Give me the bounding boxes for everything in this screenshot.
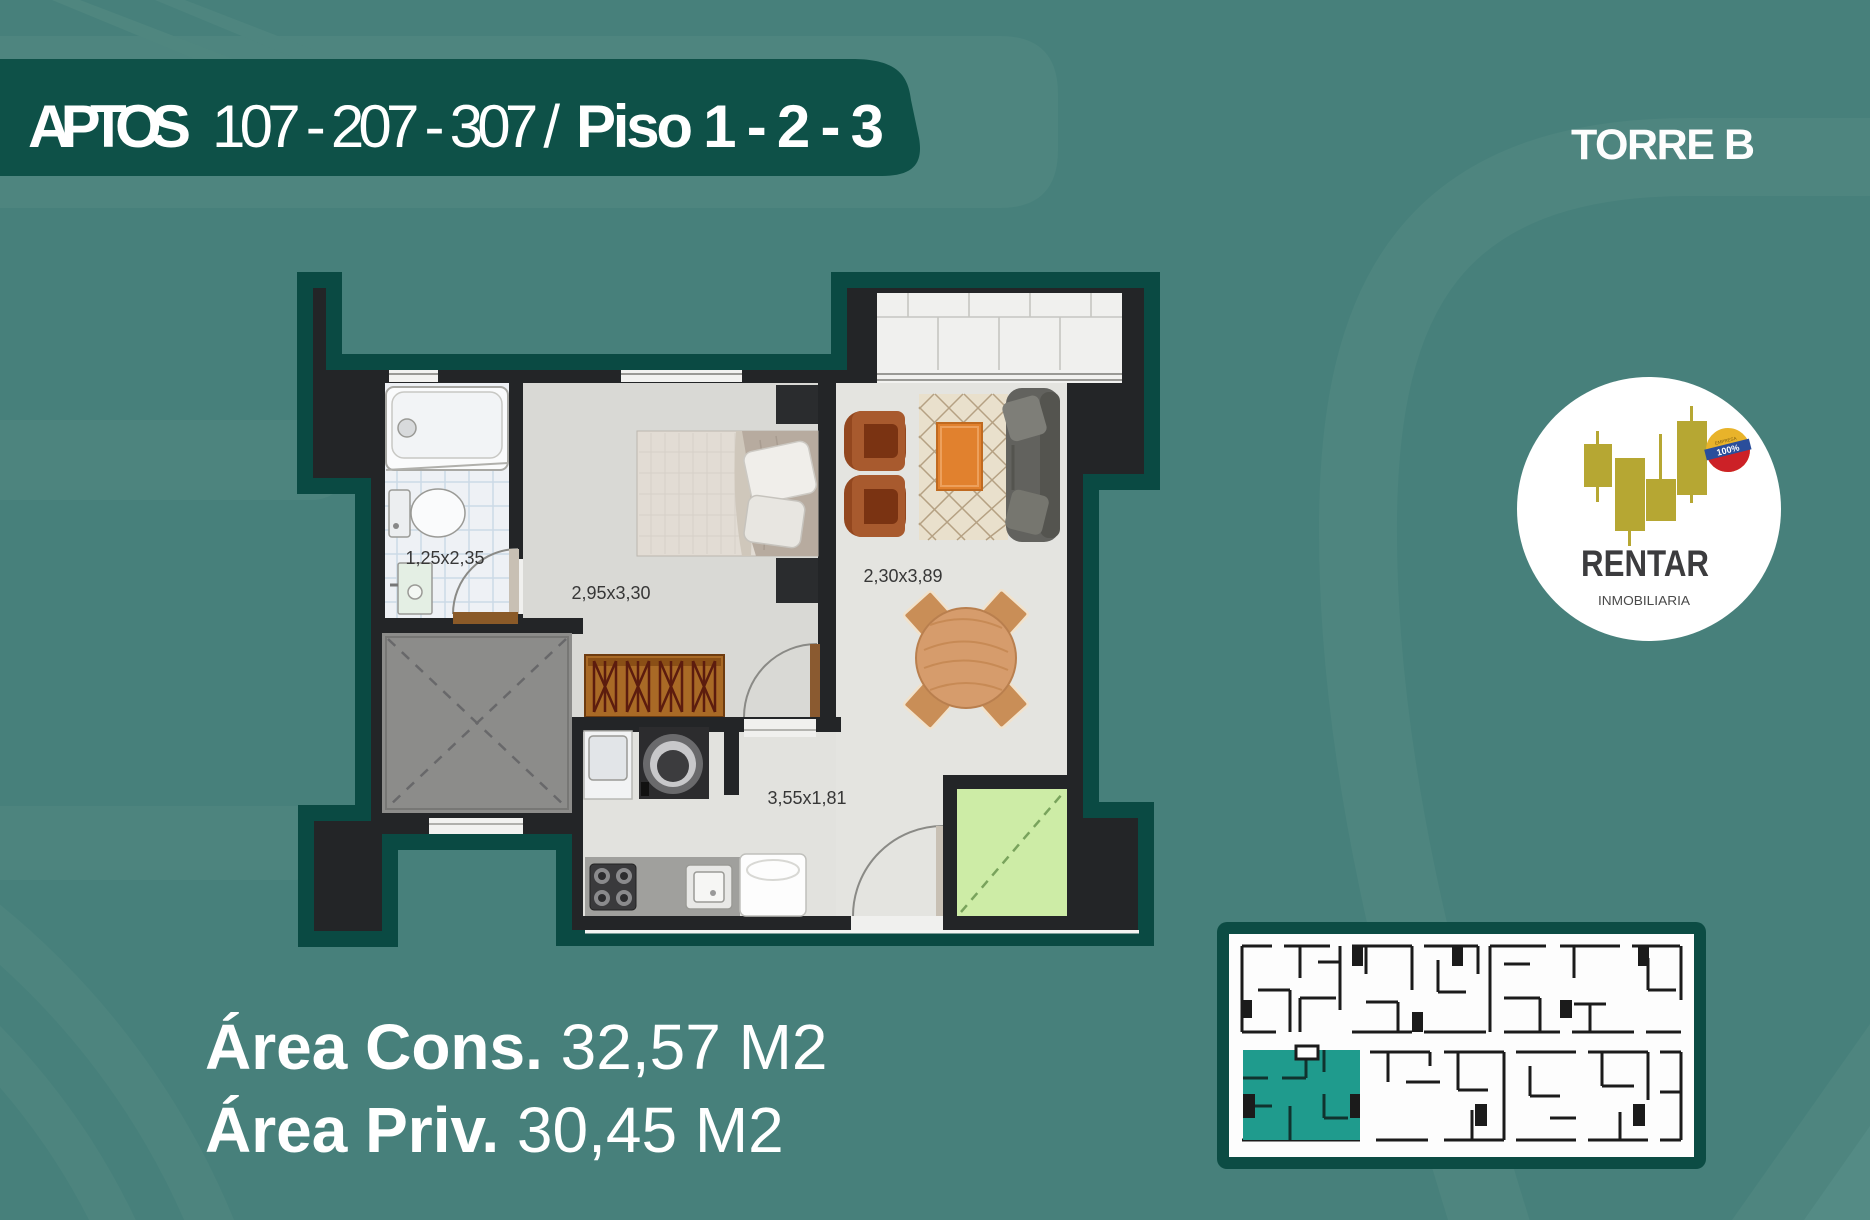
svg-text:2,95x3,30: 2,95x3,30 xyxy=(571,583,650,603)
svg-text:RENTAR: RENTAR xyxy=(1581,543,1709,584)
svg-text:TORRE B: TORRE B xyxy=(1571,121,1755,169)
svg-text:INMOBILIARIA: INMOBILIARIA xyxy=(1598,594,1691,608)
svg-text:Área Cons. 32,57 M2: Área Cons. 32,57 M2 xyxy=(205,1011,828,1083)
svg-text:2,30x3,89: 2,30x3,89 xyxy=(863,566,942,586)
svg-text:1,25x2,35: 1,25x2,35 xyxy=(405,548,484,568)
svg-text:APTOS107 - 207 - 307 /Piso 1 -: APTOS107 - 207 - 307 /Piso 1 - 2 - 3 xyxy=(28,93,884,160)
svg-text:Área Priv. 30,45 M2: Área Priv. 30,45 M2 xyxy=(205,1094,784,1166)
svg-text:3,55x1,81: 3,55x1,81 xyxy=(767,788,846,808)
